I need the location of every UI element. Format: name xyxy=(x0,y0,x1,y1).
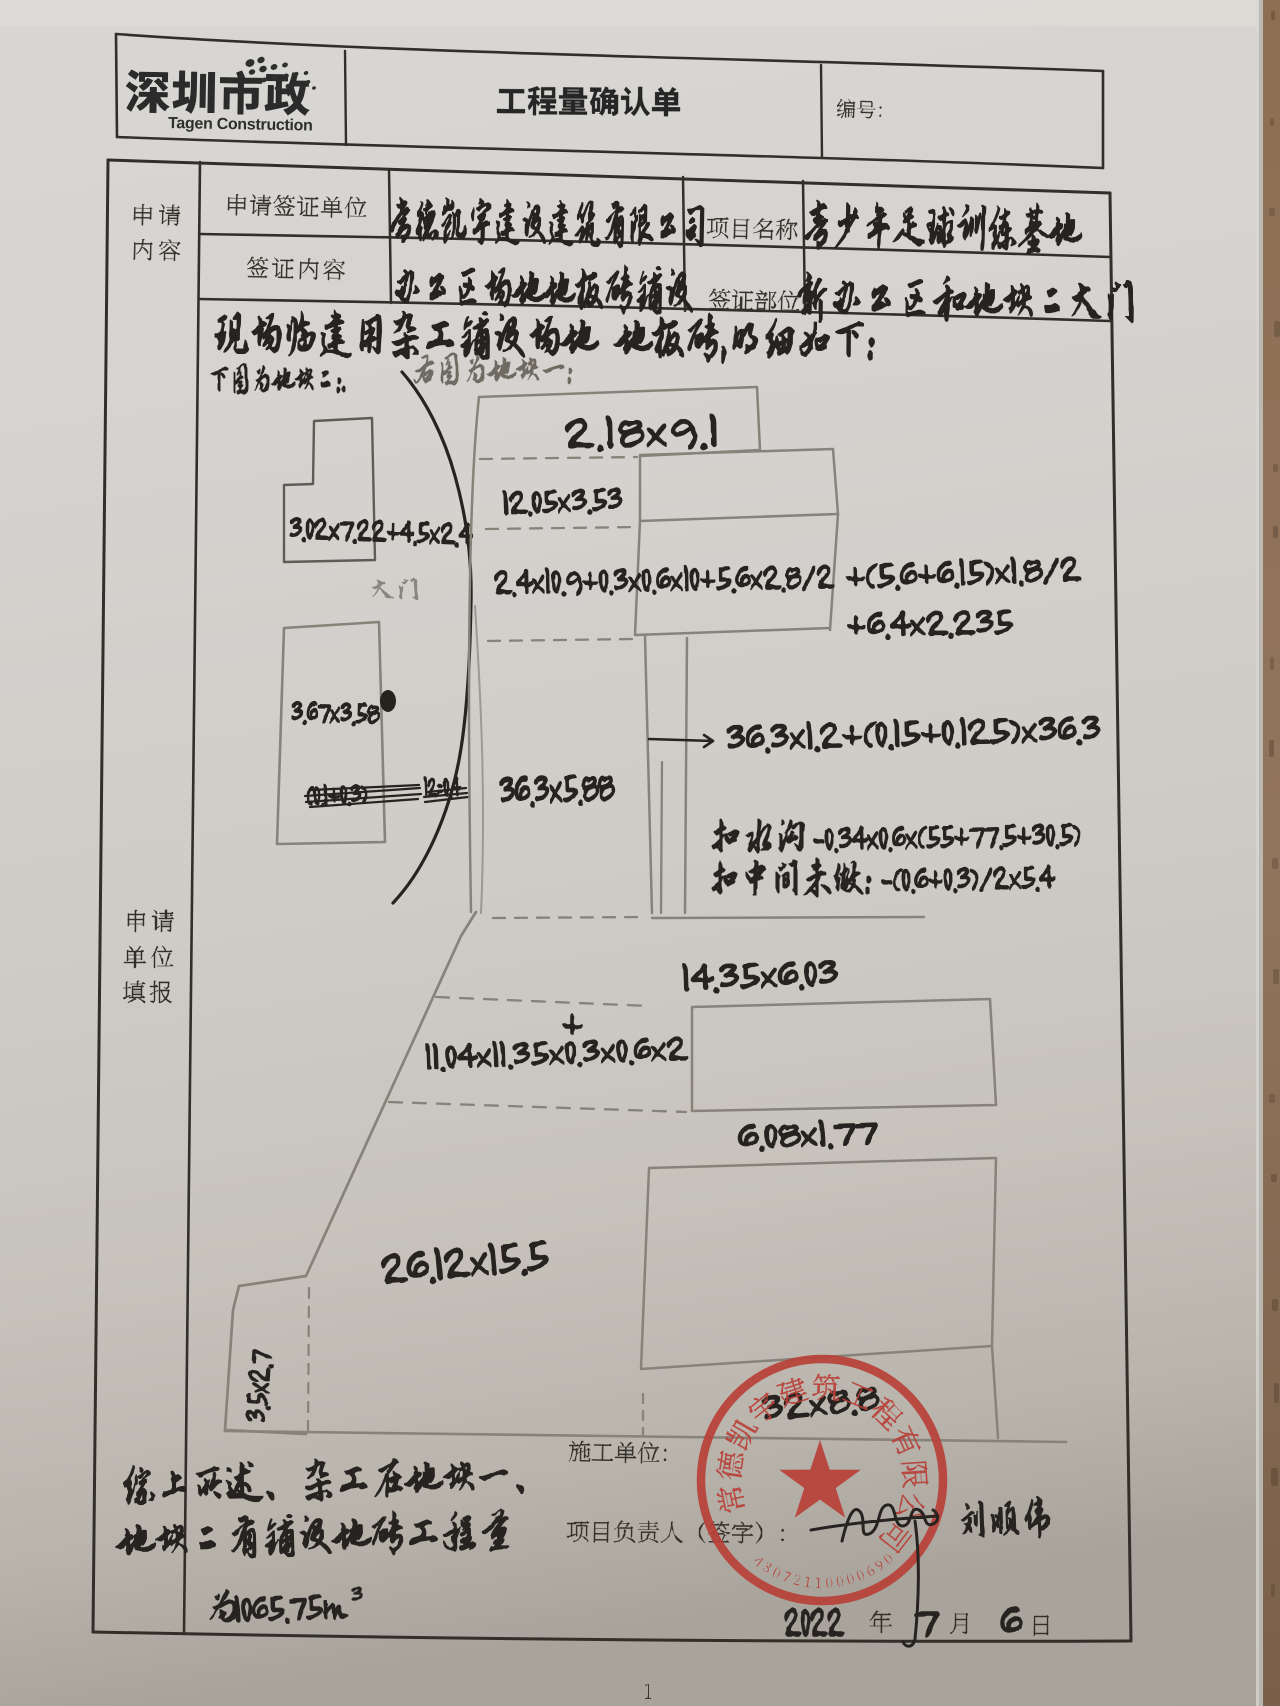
svg-text:Tagen Construction: Tagen Construction xyxy=(168,115,313,135)
